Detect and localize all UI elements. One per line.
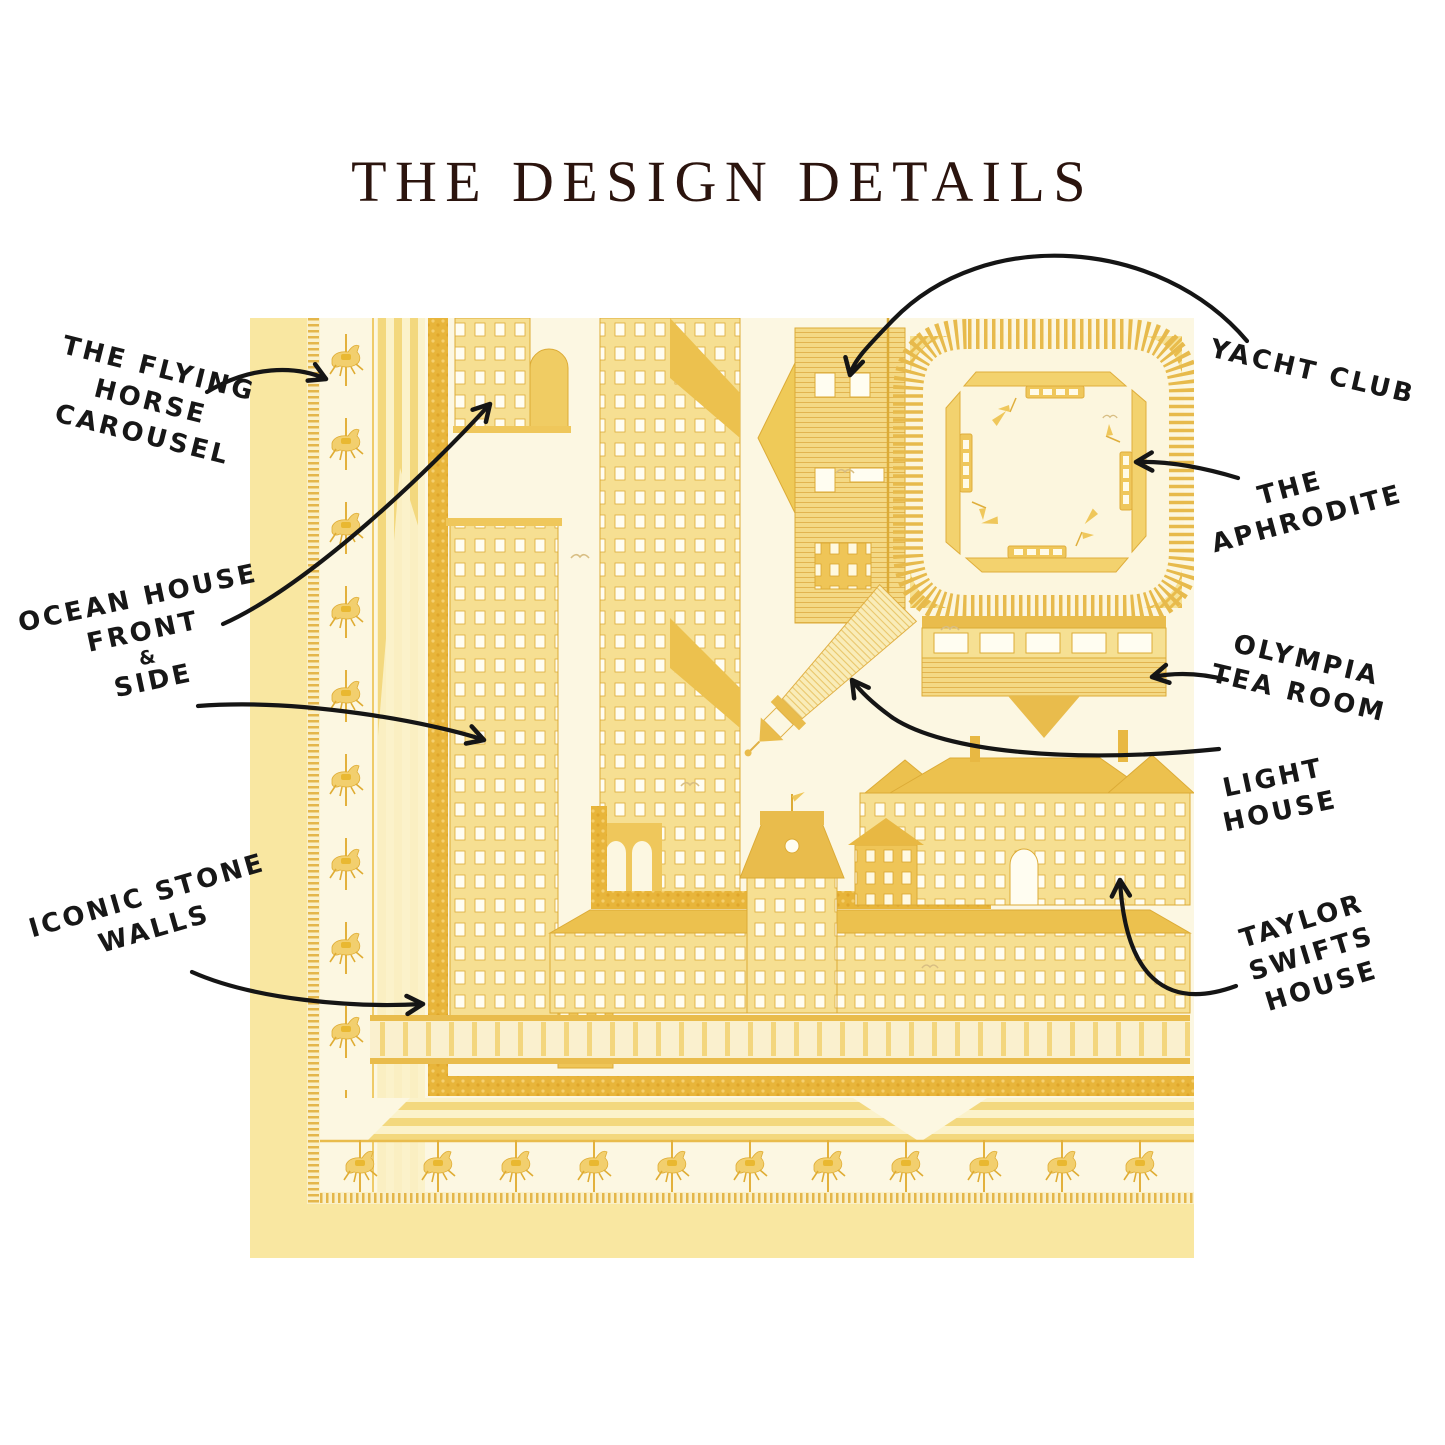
page-title: THE DESIGN DETAILS xyxy=(0,148,1445,215)
yacht-club-medallion xyxy=(908,334,1184,610)
label-flying-horse-carousel: THE FLYING HORSE CAROUSEL xyxy=(39,329,262,477)
scarf-artwork xyxy=(250,318,1194,1258)
label-taylor-swifts-house: TAYLOR SWIFTS HOUSE xyxy=(1211,880,1413,1030)
scarf-illustration xyxy=(250,318,1194,1258)
left-border xyxy=(307,318,425,1204)
label-iconic-stone-walls: ICONIC STONE WALLS xyxy=(25,848,274,979)
label-olympia-tea-room: OLYMPIA TEA ROOM xyxy=(1200,623,1405,733)
label-ocean-house: OCEAN HOUSE FRONT & SIDE xyxy=(15,558,274,723)
label-light-house: LIGHT HOUSE xyxy=(1197,747,1358,844)
label-the-aphrodite: THE APHRODITE xyxy=(1199,450,1390,562)
victorian-buildings xyxy=(600,318,740,903)
design-details-page: THE DESIGN DETAILS xyxy=(0,0,1445,1445)
label-yacht-club: YACHT CLUB xyxy=(1204,332,1421,413)
label-line: YACHT CLUB xyxy=(1204,332,1421,413)
